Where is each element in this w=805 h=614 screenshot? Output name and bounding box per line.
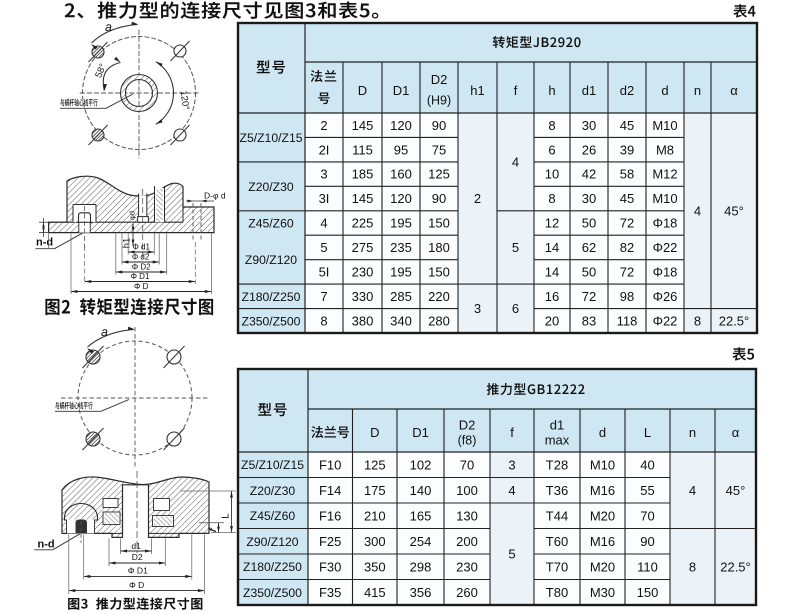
svg-text:Φ D: Φ D [129, 580, 144, 590]
svg-text:125: 125 [428, 167, 450, 182]
svg-text:4: 4 [512, 155, 519, 170]
svg-text:45: 45 [620, 118, 634, 133]
svg-text:6: 6 [548, 142, 555, 157]
svg-text:340: 340 [390, 313, 412, 328]
svg-text:150: 150 [428, 265, 450, 280]
svg-text:d1: d1 [550, 418, 564, 433]
svg-text:22.5°: 22.5° [720, 559, 751, 574]
svg-text:F30: F30 [319, 559, 341, 574]
svg-text:Φ18: Φ18 [653, 216, 678, 231]
svg-text:α: α [732, 425, 740, 440]
svg-text:415: 415 [364, 585, 386, 600]
svg-text:72: 72 [620, 216, 634, 231]
svg-text:d1: d1 [582, 83, 596, 98]
svg-text:T44: T44 [546, 508, 568, 523]
svg-text:M30: M30 [590, 585, 615, 600]
svg-text:8: 8 [689, 559, 696, 574]
svg-text:70: 70 [460, 457, 474, 472]
svg-text:D1: D1 [393, 83, 410, 98]
svg-text:58: 58 [620, 167, 634, 182]
svg-text:D: D [370, 425, 379, 440]
svg-text:14: 14 [545, 265, 559, 280]
svg-text:h1: h1 [470, 83, 484, 98]
svg-text:7: 7 [320, 289, 327, 304]
svg-text:Φ22: Φ22 [653, 313, 678, 328]
svg-text:175: 175 [364, 483, 386, 498]
svg-text:26: 26 [582, 142, 596, 157]
svg-text:3: 3 [474, 301, 481, 316]
svg-text:195: 195 [390, 265, 412, 280]
svg-text:T80: T80 [546, 585, 568, 600]
svg-text:235: 235 [390, 240, 412, 255]
svg-text:300: 300 [364, 534, 386, 549]
svg-text:2I: 2I [319, 142, 330, 157]
svg-text:Z180/Z250: Z180/Z250 [242, 290, 301, 304]
svg-text:Φ d1: Φ d1 [132, 243, 150, 252]
svg-text:45: 45 [620, 191, 634, 206]
svg-text:n-d: n-d [38, 539, 55, 551]
svg-text:115: 115 [352, 142, 373, 157]
svg-text:M20: M20 [590, 559, 615, 574]
svg-text:16: 16 [545, 289, 559, 304]
svg-text:72: 72 [620, 265, 634, 280]
svg-text:d: d [661, 83, 668, 98]
svg-text:90: 90 [432, 191, 446, 206]
svg-text:d1: d1 [131, 541, 141, 551]
svg-text:Φ D1: Φ D1 [131, 272, 150, 281]
svg-text:Z20/Z30: Z20/Z30 [250, 484, 296, 498]
svg-text:8: 8 [694, 313, 701, 328]
svg-text:8: 8 [548, 118, 555, 133]
svg-text:150: 150 [428, 216, 450, 231]
svg-text:50: 50 [582, 216, 596, 231]
svg-text:Z5/Z10/Z15: Z5/Z10/Z15 [240, 131, 303, 145]
svg-text:130: 130 [456, 508, 478, 523]
svg-text:Φ D2: Φ D2 [132, 263, 151, 272]
svg-text:D-φ d: D-φ d [204, 191, 226, 201]
svg-text:275: 275 [352, 240, 374, 255]
svg-text:3: 3 [508, 457, 515, 472]
svg-text:F35: F35 [319, 585, 341, 600]
svg-text:150: 150 [637, 585, 659, 600]
svg-text:75: 75 [432, 142, 446, 157]
svg-text:14: 14 [545, 240, 559, 255]
svg-text:200: 200 [456, 534, 478, 549]
svg-text:5I: 5I [319, 265, 330, 280]
svg-text:4: 4 [689, 483, 696, 498]
svg-text:n: n [689, 425, 696, 440]
svg-text:T28: T28 [546, 457, 568, 472]
svg-text:8: 8 [320, 313, 327, 328]
svg-text:220: 220 [428, 289, 450, 304]
svg-text:M10: M10 [652, 118, 677, 133]
svg-text:f: f [510, 425, 514, 440]
svg-text:95: 95 [394, 142, 408, 157]
svg-text:F25: F25 [319, 534, 341, 549]
svg-text:110: 110 [637, 559, 658, 574]
svg-text:Z45/Z60: Z45/Z60 [248, 217, 294, 231]
svg-text:Z350/Z500: Z350/Z500 [242, 314, 301, 328]
svg-text:F10: F10 [319, 457, 341, 472]
svg-text:M16: M16 [590, 483, 615, 498]
svg-text:356: 356 [410, 585, 432, 600]
svg-text:4: 4 [320, 216, 327, 231]
svg-text:280: 280 [428, 313, 450, 328]
svg-text:185: 185 [352, 167, 374, 182]
svg-text:125: 125 [364, 457, 386, 472]
svg-text:30: 30 [582, 118, 596, 133]
svg-text:h: h [548, 83, 555, 98]
svg-text:330: 330 [352, 289, 374, 304]
svg-text:Z5/Z10/Z15: Z5/Z10/Z15 [241, 458, 304, 472]
svg-text:2: 2 [320, 118, 327, 133]
svg-text:Z180/Z250: Z180/Z250 [243, 560, 302, 574]
svg-text:254: 254 [410, 534, 432, 549]
svg-text:Φ26: Φ26 [653, 289, 678, 304]
svg-text:230: 230 [456, 559, 478, 574]
svg-text:225: 225 [352, 216, 374, 231]
svg-text:M10: M10 [652, 191, 677, 206]
svg-text:d: d [599, 425, 606, 440]
svg-text:12: 12 [545, 216, 559, 231]
svg-text:(f8): (f8) [458, 434, 477, 448]
svg-text:Φ D1: Φ D1 [128, 566, 148, 576]
svg-text:D: D [358, 83, 367, 98]
svg-text:Φ18: Φ18 [653, 265, 678, 280]
svg-text:M16: M16 [590, 534, 615, 549]
svg-text:n: n [694, 83, 701, 98]
svg-text:90: 90 [640, 534, 654, 549]
svg-text:118: 118 [617, 313, 638, 328]
svg-text:8: 8 [548, 191, 555, 206]
svg-text:145: 145 [352, 191, 374, 206]
svg-text:5: 5 [512, 240, 519, 255]
svg-text:100: 100 [456, 483, 478, 498]
svg-text:160: 160 [390, 167, 412, 182]
svg-text:98: 98 [620, 289, 634, 304]
svg-text:350: 350 [364, 559, 386, 574]
svg-text:260: 260 [456, 585, 478, 600]
svg-text:T36: T36 [546, 483, 568, 498]
svg-text:120: 120 [390, 191, 412, 206]
svg-text:30: 30 [582, 191, 596, 206]
svg-text:5: 5 [508, 547, 515, 562]
svg-text:5: 5 [320, 240, 327, 255]
svg-text:n-d: n-d [36, 237, 53, 249]
svg-text:22.5°: 22.5° [719, 313, 750, 328]
svg-text:d2: d2 [620, 83, 634, 98]
svg-text:Φ22: Φ22 [653, 240, 678, 255]
svg-text:20: 20 [545, 313, 559, 328]
svg-text:90: 90 [432, 118, 446, 133]
svg-text:α: α [730, 83, 738, 98]
svg-text:Z90/Z120: Z90/Z120 [245, 253, 297, 267]
svg-text:50: 50 [582, 265, 596, 280]
svg-text:62: 62 [582, 240, 596, 255]
svg-text:F16: F16 [319, 508, 341, 523]
svg-text:3I: 3I [319, 191, 330, 206]
svg-text:F14: F14 [319, 483, 341, 498]
svg-text:10: 10 [545, 167, 559, 182]
svg-text:72: 72 [582, 289, 596, 304]
svg-text:210: 210 [364, 508, 386, 523]
svg-text:40: 40 [640, 457, 654, 472]
svg-text:3: 3 [320, 167, 327, 182]
svg-text:T70: T70 [546, 559, 568, 574]
svg-text:2: 2 [474, 191, 481, 206]
svg-text:Z350/Z500: Z350/Z500 [243, 586, 302, 600]
svg-text:M20: M20 [590, 508, 615, 523]
svg-text:max: max [545, 433, 570, 448]
svg-text:55: 55 [640, 483, 654, 498]
svg-text:82: 82 [620, 240, 634, 255]
svg-text:140: 140 [410, 483, 432, 498]
svg-text:6: 6 [512, 301, 519, 316]
svg-text:195: 195 [390, 216, 412, 231]
svg-text:T60: T60 [546, 534, 568, 549]
svg-text:120: 120 [390, 118, 412, 133]
svg-text:102: 102 [410, 457, 432, 472]
svg-text:D2: D2 [459, 418, 476, 433]
svg-text:39: 39 [620, 142, 634, 157]
svg-text:Z20/Z30: Z20/Z30 [248, 180, 294, 194]
svg-text:45°: 45° [726, 483, 746, 498]
svg-text:180: 180 [428, 240, 450, 255]
svg-text:Φ D: Φ D [134, 282, 149, 291]
svg-text:(H9): (H9) [427, 94, 451, 108]
svg-text:4: 4 [694, 203, 701, 218]
svg-text:70: 70 [640, 508, 654, 523]
svg-text:D2: D2 [132, 552, 143, 562]
svg-text:f: f [514, 83, 518, 98]
svg-text:230: 230 [352, 265, 374, 280]
svg-text:4: 4 [508, 483, 515, 498]
svg-text:285: 285 [390, 289, 412, 304]
svg-text:M12: M12 [652, 167, 677, 182]
svg-text:L: L [644, 425, 651, 440]
svg-text:145: 145 [352, 118, 374, 133]
svg-text:298: 298 [410, 559, 432, 574]
svg-text:Z90/Z120: Z90/Z120 [246, 535, 298, 549]
svg-text:Z45/Z60: Z45/Z60 [250, 509, 296, 523]
svg-text:165: 165 [410, 508, 432, 523]
svg-text:M10: M10 [590, 457, 615, 472]
svg-text:M8: M8 [656, 142, 674, 157]
svg-text:42: 42 [582, 167, 596, 182]
svg-text:380: 380 [352, 313, 374, 328]
svg-text:45°: 45° [724, 203, 744, 218]
svg-text:83: 83 [582, 313, 596, 328]
svg-text:Φ d2: Φ d2 [132, 253, 150, 262]
svg-text:D1: D1 [412, 425, 429, 440]
svg-text:D2: D2 [431, 72, 448, 87]
